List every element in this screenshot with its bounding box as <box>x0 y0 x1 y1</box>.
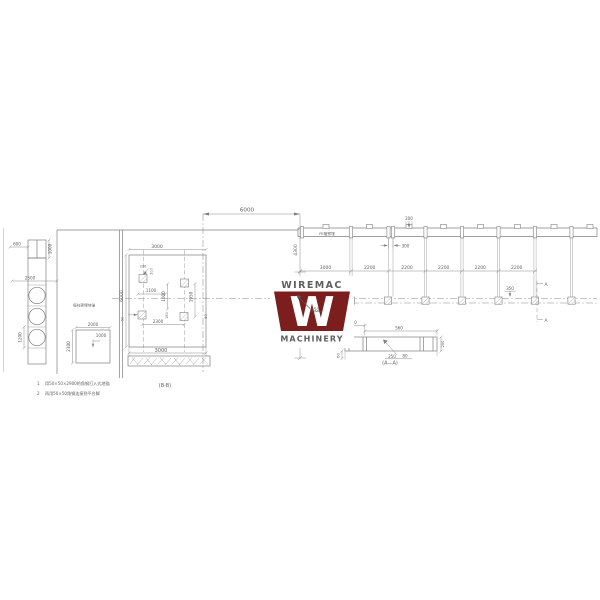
note-1-num: 1 <box>37 381 40 386</box>
dim-aa-height: 60 <box>337 353 341 358</box>
note-2-num: 2 <box>37 391 40 396</box>
section-bb-label: (B-B) <box>159 383 171 389</box>
anchor-note-label: 每柱预埋地锚 <box>73 303 95 308</box>
dim-bb-left: 6000 <box>119 290 125 302</box>
upper-rail: PE管预埋 200 300 <box>298 216 597 249</box>
dim-edge-left: 50 <box>121 317 125 321</box>
anchor-hole-2 <box>29 308 45 324</box>
dim-pad-b: 200 <box>150 268 154 274</box>
section-a-label-bottom: A <box>545 318 549 324</box>
dim-post-gap: 300 <box>402 243 410 248</box>
dim-aa-span: 560 <box>395 325 403 330</box>
dim-aa-bottom1: 250 <box>388 354 396 359</box>
anchor-hole-1 <box>29 287 45 303</box>
dim-pad-y2: 1950 <box>188 291 193 302</box>
dim-rail-1: 2200 <box>364 265 376 271</box>
drawing-page: 600 1000 2500 1200 每柱预埋地锚 2000 2100 1000… <box>0 0 600 600</box>
rail-dim-chain: 3000 2200 2200 2200 2200 2200 <box>298 265 537 273</box>
pe-pipe-label: PE管预埋 <box>319 231 335 236</box>
dim-rail-3: 2200 <box>438 265 450 271</box>
note-2-text: 再用50×50角钢连接到平台脚 <box>45 390 100 396</box>
dim-pad-a: 200 <box>140 265 146 269</box>
section-a-label-top: A <box>545 282 549 288</box>
ground-hatch <box>130 358 208 366</box>
dim-rail-5: 2200 <box>511 265 523 271</box>
dim-left-top-width: 600 <box>13 242 21 247</box>
dim-bb-top: 3000 <box>151 244 163 250</box>
column-lines <box>350 237 573 297</box>
dim-pad-small: 180 <box>165 312 169 318</box>
logo-wordmark-bottom: MACHINERY <box>280 335 343 344</box>
note-1-text: 用50×50×2900的角钢打入式地锚 <box>45 380 110 386</box>
dim-rail-offset: 350 <box>506 286 514 291</box>
dim-top-span: 6000 <box>240 208 255 214</box>
dim-pad-x: 1100 <box>146 288 157 293</box>
dim-square-height: 2100 <box>66 341 71 352</box>
dim-left-width: 2500 <box>25 275 36 280</box>
dim-square-width: 2000 <box>88 322 99 327</box>
dim-edge-right: 50 <box>204 314 208 318</box>
dim-pad-span: 2300 <box>153 319 164 324</box>
cad-drawing: 600 1000 2500 1200 每柱预埋地锚 2000 2100 1000… <box>0 0 600 600</box>
dim-rail-4: 2200 <box>474 265 486 271</box>
dim-left-top-height: 1000 <box>48 243 53 254</box>
dim-height-upper: 4300 <box>293 244 299 256</box>
dim-aa-bottom2: 80 <box>402 353 408 358</box>
dim-pad-y: 1000 <box>161 291 166 302</box>
dim-square-inner: 1000 <box>96 333 107 338</box>
dim-aa-right: 200 <box>441 340 445 348</box>
section-aa-label: (A—A) <box>382 361 398 367</box>
dim-post-cap: 200 <box>405 216 413 221</box>
dim-left-cell: 1200 <box>18 332 23 343</box>
notes: 1 用50×50×2900的角钢打入式地锚 2 再用50×50角钢连接到平台脚 <box>37 380 110 396</box>
dim-rail-2: 2200 <box>401 265 413 271</box>
channel-label: #50 <box>311 307 320 312</box>
anchor-hole-3 <box>29 329 45 345</box>
dim-rail-0: 3000 <box>320 265 332 271</box>
section-bb-detail: 200 200 1100 1000 1950 180 2300 50 50 60… <box>119 244 210 389</box>
dim-bb-bottom: 3000 <box>155 348 168 354</box>
